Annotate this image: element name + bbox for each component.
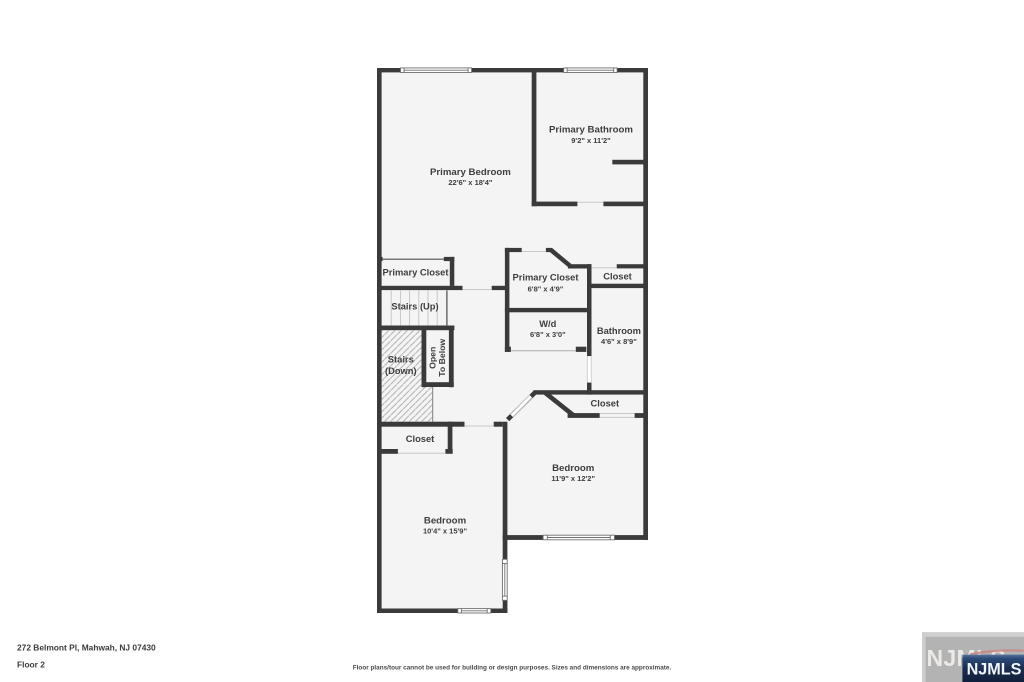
svg-text:10'4" x 15'9": 10'4" x 15'9" — [423, 527, 467, 536]
svg-text:Bathroom: Bathroom — [597, 326, 641, 336]
svg-text:272 Belmont Pl, Mahwah, NJ 074: 272 Belmont Pl, Mahwah, NJ 07430 — [17, 643, 156, 653]
svg-text:6'8" x 4'9": 6'8" x 4'9" — [528, 285, 564, 294]
svg-text:6'8" x 3'0": 6'8" x 3'0" — [530, 330, 566, 339]
svg-text:NJMLS: NJMLS — [967, 660, 1022, 678]
svg-text:Primary Bathroom: Primary Bathroom — [549, 124, 633, 135]
svg-text:11'9" x 12'2": 11'9" x 12'2" — [551, 474, 595, 483]
svg-text:W/d: W/d — [539, 319, 556, 329]
svg-text:Closet: Closet — [603, 271, 632, 281]
svg-text:Primary Closet: Primary Closet — [513, 273, 579, 283]
svg-text:4'6" x 8'9": 4'6" x 8'9" — [601, 337, 637, 346]
svg-text:Floor 2: Floor 2 — [17, 660, 45, 670]
svg-text:Bedroom: Bedroom — [424, 516, 466, 527]
svg-text:9'2" x 11'2": 9'2" x 11'2" — [571, 136, 611, 145]
svg-text:Closet: Closet — [591, 399, 620, 409]
svg-text:Primary Closet: Primary Closet — [383, 268, 449, 278]
svg-text:22'6" x 18'4": 22'6" x 18'4" — [448, 178, 492, 187]
svg-text:Floor plans/tour cannot be use: Floor plans/tour cannot be used for buil… — [353, 665, 672, 672]
svg-text:Primary Bedroom: Primary Bedroom — [430, 167, 511, 178]
svg-text:(Down): (Down) — [385, 366, 417, 376]
svg-text:Closet: Closet — [406, 434, 435, 444]
svg-text:To Below: To Below — [437, 339, 447, 377]
svg-text:Open: Open — [428, 347, 438, 369]
svg-text:Stairs: Stairs — [388, 355, 414, 365]
svg-text:Stairs (Up): Stairs (Up) — [391, 302, 438, 312]
svg-text:Bedroom: Bedroom — [552, 463, 594, 474]
